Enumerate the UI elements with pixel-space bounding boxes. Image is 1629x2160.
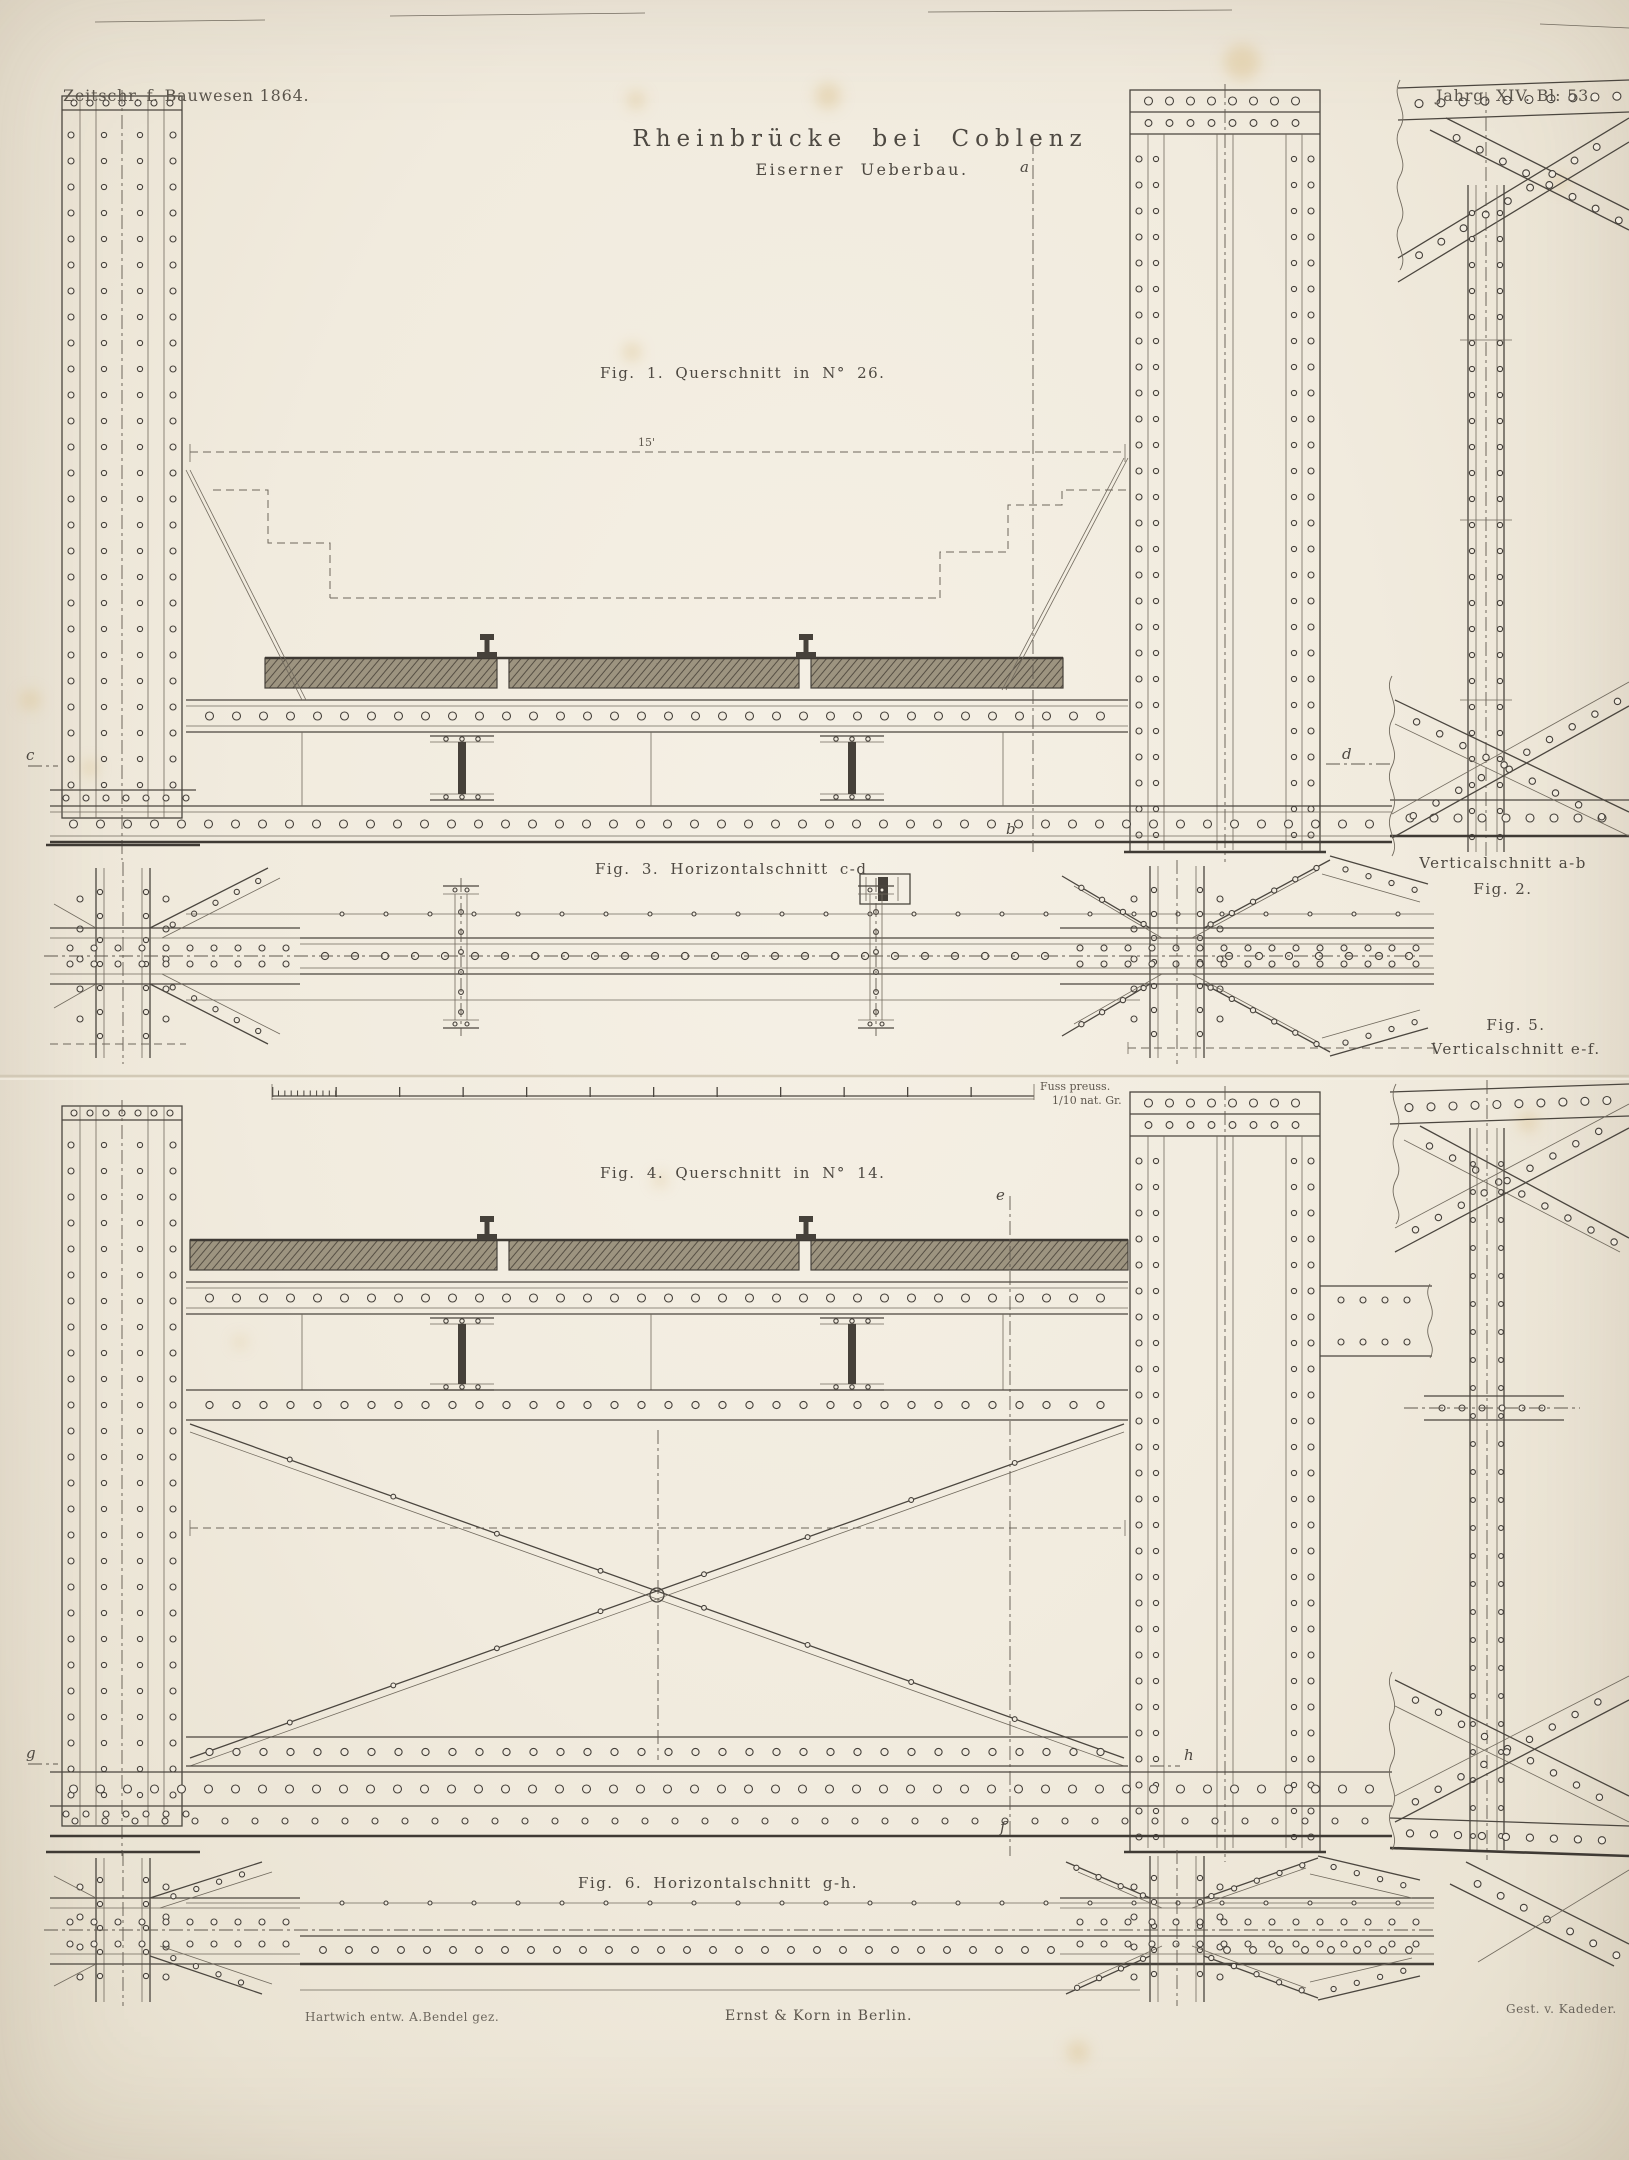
scale-bar [272, 1084, 1034, 1100]
rail-section [477, 634, 816, 658]
fig3-caption: Fig. 3. Horizontalschnitt c-d [595, 860, 867, 878]
section-letter-g: g [26, 1744, 36, 1762]
credit-designer: Hartwich entw. A.Bendel gez. [305, 2010, 499, 2024]
fig2-drawing [1389, 80, 1629, 862]
section-letter-f: f [1000, 1818, 1006, 1836]
span-dimension: 15' [638, 436, 655, 449]
fig5-caption-line1: Fig. 5. [1416, 1016, 1616, 1034]
fig1-dimension-lines [28, 140, 1390, 852]
rail-section [477, 1216, 816, 1240]
fig3-main-girder [44, 878, 1434, 1036]
fig6-caption: Fig. 6. Horizontalschnitt g-h. [578, 1874, 858, 1892]
section-letter-e: e [996, 1186, 1005, 1204]
fig4-caption: Fig. 4. Querschnitt in N° 14. [600, 1164, 885, 1182]
engraving-linework [0, 0, 1629, 2160]
fig1-caption: Fig. 1. Querschnitt in N° 26. [600, 364, 885, 382]
scale-label-line1: Fuss preuss. [1040, 1080, 1110, 1093]
small-detail-sketch [860, 874, 910, 904]
fig1-deck [265, 634, 1063, 688]
fig1-left-column [46, 90, 200, 860]
fold-crease [0, 1076, 1629, 1079]
fig6-left-assembly [50, 1852, 300, 2006]
credit-publisher: Ernst & Korn in Berlin. [725, 2008, 912, 2024]
plate-number: Jahrg. XIV. Bl: 53. [1380, 86, 1595, 105]
section-letter-b: b [1006, 820, 1016, 838]
plate-title: Rheinbrücke bei Coblenz [540, 126, 1180, 152]
fig5-drawing [1389, 1080, 1629, 1966]
section-letter-a: a [1020, 158, 1029, 176]
section-letter-h: h [1184, 1746, 1194, 1764]
fig2-caption-line1: Verticalschnitt a-b [1403, 854, 1603, 872]
plate-margin-marks [95, 10, 1629, 28]
section-letter-c: c [26, 746, 34, 764]
engraving-plate: Zeitschr. f. Bauwesen 1864. Jahrg. XIV. … [0, 0, 1629, 2160]
fig3-left-assembly [50, 862, 300, 1064]
fig5-caption-line2: Verticalschnitt e-f. [1406, 1040, 1626, 1058]
fig4-dimension-lines [28, 1196, 1180, 1856]
fig6-right-assembly [1060, 1850, 1434, 2006]
section-letter-d: d [1342, 745, 1352, 763]
fig1-right-column [1124, 84, 1326, 862]
fig4-right-column [1124, 1086, 1432, 1862]
fig4-left-column [46, 1100, 200, 1856]
scale-label-line2: 1/10 nat. Gr. [1052, 1094, 1122, 1107]
paper-stains [20, 44, 1568, 2063]
fig2-caption-line2: Fig. 2. [1403, 880, 1603, 898]
plate-subtitle: Eiserner Ueberbau. [562, 160, 1162, 179]
fig1-girders [50, 458, 1392, 842]
journal-title: Zeitschr. f. Bauwesen 1864. [63, 86, 309, 105]
fig4-deck [190, 1216, 1128, 1270]
credit-engraver: Gest. v. Kadeder. [1506, 2002, 1617, 2016]
